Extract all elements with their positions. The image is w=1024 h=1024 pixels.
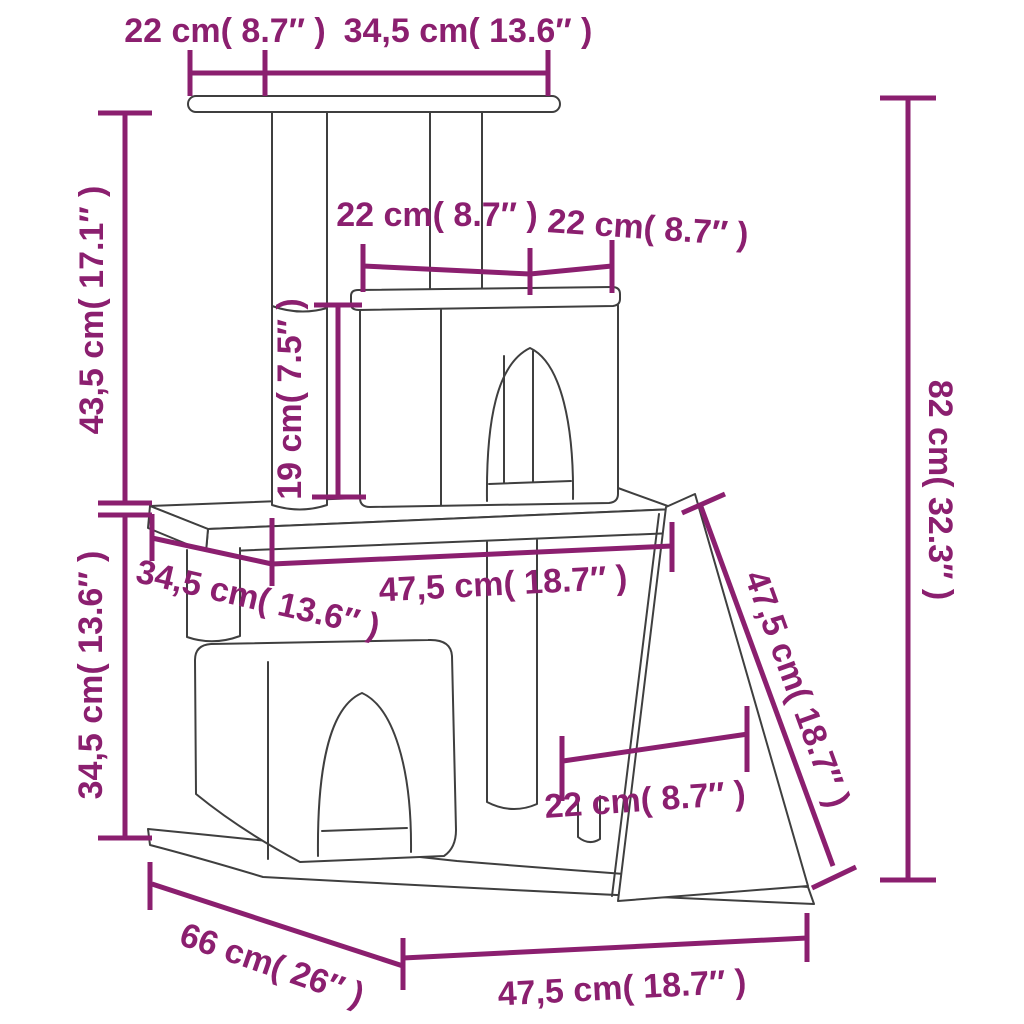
dim-label-post-height: 19 cm( 7.5″ ) xyxy=(271,298,309,500)
dim-label-condo-right: 22 cm( 8.7″ ) xyxy=(546,202,750,254)
dim-label-lower-height: 34,5 cm( 13.6″ ) xyxy=(72,551,110,800)
dim-label-condo-left: 22 cm( 8.7″ ) xyxy=(336,196,538,234)
dim-label-upper-height: 43,5 cm( 17.1″ ) xyxy=(73,186,111,435)
dim-label-top-board: 34,5 cm( 13.6″ ) xyxy=(344,12,593,50)
dim-label-platform-depth: 34,5 cm( 13.6″ ) xyxy=(133,553,384,646)
ramp xyxy=(618,494,808,901)
dim-base-width: 47,5 cm( 18.7″ ) xyxy=(403,913,807,1013)
condo-roof-board xyxy=(351,287,620,310)
dim-total-height: 82 cm( 32.3″ ) xyxy=(880,98,959,880)
cat-tree-dimension-diagram: 22 cm( 8.7″ ) 34,5 cm( 13.6″ ) 43,5 cm( … xyxy=(0,0,1024,1024)
dim-label-base-width: 47,5 cm( 18.7″ ) xyxy=(497,963,747,1014)
diagram-canvas: 22 cm( 8.7″ ) 34,5 cm( 13.6″ ) 43,5 cm( … xyxy=(0,0,1024,1024)
dim-upper-height: 43,5 cm( 17.1″ ) xyxy=(73,113,152,503)
top-board xyxy=(188,96,560,112)
dim-base-depth: 66 cm( 26″ ) xyxy=(150,862,403,1014)
dim-top-width: 22 cm( 8.7″ ) 34,5 cm( 13.6″ ) xyxy=(124,12,592,96)
dim-condo-roof: 22 cm( 8.7″ ) 22 cm( 8.7″ ) xyxy=(336,196,750,295)
dim-label-total-height: 82 cm( 32.3″ ) xyxy=(921,380,959,600)
dim-label-base-depth: 66 cm( 26″ ) xyxy=(175,916,369,1014)
dim-label-top-overhang: 22 cm( 8.7″ ) xyxy=(124,12,326,50)
dim-label-platform-width: 47,5 cm( 18.7″ ) xyxy=(378,559,628,610)
